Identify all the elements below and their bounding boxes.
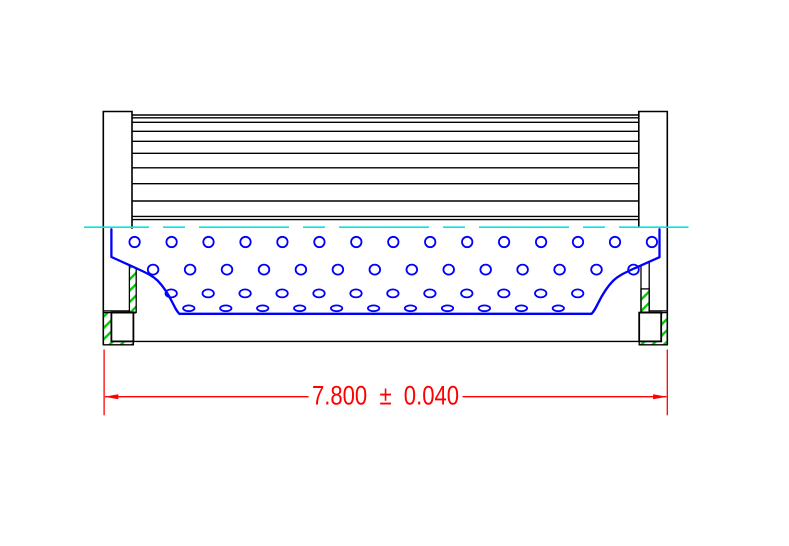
svg-text:7.800 ± 0.040: 7.800 ± 0.040 bbox=[312, 381, 459, 411]
